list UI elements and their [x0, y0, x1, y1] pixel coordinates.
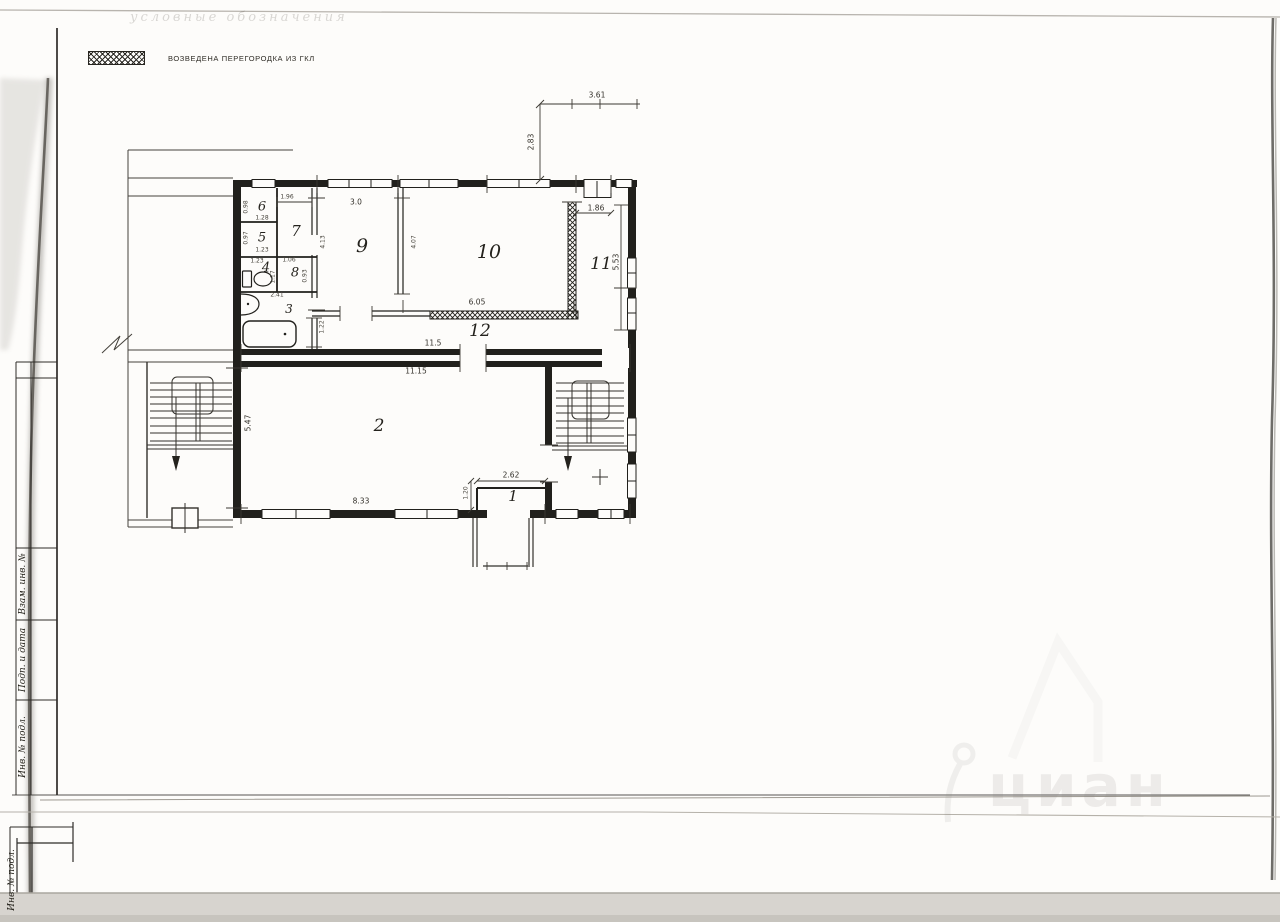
dim-2-83: 2.83 — [527, 134, 536, 151]
room-label-3: 3 — [285, 302, 293, 316]
dim-11-15: 11.15 — [405, 367, 426, 376]
toilet-tank-icon — [243, 271, 252, 287]
dim-5-47: 5.47 — [244, 415, 253, 432]
room-label-5: 5 — [258, 231, 266, 246]
titleblock-inv-podl-label: Инв. № подл. — [18, 716, 28, 778]
bathtub-icon — [243, 321, 296, 347]
dim-4-07: 4.07 — [411, 235, 418, 248]
gkl-partition-hatched — [430, 202, 578, 319]
room-label-7: 7 — [291, 222, 301, 240]
dim-room4-w: 1.23 — [250, 258, 263, 265]
cian-watermark-text: циан — [988, 752, 1171, 820]
entrance-porch — [473, 518, 533, 567]
room-label-1: 1 — [508, 487, 518, 505]
legend-section-title: условные обозначения — [130, 10, 348, 25]
stairs-right — [552, 381, 628, 485]
cian-logo-icon — [938, 742, 984, 832]
room-label-8: 8 — [291, 266, 299, 281]
dim-room5-w: 1.23 — [255, 247, 268, 254]
room-label-6: 6 — [258, 200, 266, 215]
dim-room8-w: 1.06 — [282, 257, 295, 264]
scan-bottom-band — [0, 893, 1280, 922]
room-label-10: 10 — [477, 241, 501, 263]
dim-room6-h: 0.98 — [243, 200, 250, 213]
legend-hatch-swatch — [88, 51, 145, 65]
dim-11-5: 11.5 — [425, 339, 442, 348]
dim-room6-w: 1.28 — [255, 215, 268, 222]
scanned-floor-plan-sheet: условные обозначения ВОЗВЕДЕНА ПЕРЕГОРОД… — [0, 0, 1280, 922]
dim-room8-h: 0.93 — [302, 269, 309, 282]
dim-1-22: 1.22 — [319, 320, 326, 333]
dim-room4-h: 1.17 — [270, 270, 277, 283]
dim-8-33: 8.33 — [353, 497, 370, 506]
titleblock-vzam-inv-label: Взам. инв. № — [18, 553, 28, 614]
legend-hatch-label: ВОЗВЕДЕНА ПЕРЕГОРОДКА ИЗ ГКЛ — [168, 54, 315, 63]
room-label-2: 2 — [374, 416, 385, 436]
dim-2-62: 2.62 — [503, 471, 520, 480]
room-label-12: 12 — [469, 321, 491, 341]
dim-4-13: 4.13 — [320, 235, 327, 248]
dim-room3-w: 2.41 — [270, 292, 283, 299]
room-label-9: 9 — [356, 235, 368, 257]
dim-6-05: 6.05 — [469, 298, 486, 307]
dim-1-20: 1.20 — [463, 486, 470, 499]
dim-3-0: 3.0 — [350, 198, 362, 207]
room-label-11: 11 — [590, 254, 612, 274]
dim-3-61: 3.61 — [589, 91, 606, 100]
watermark-house-ghost — [1012, 642, 1098, 762]
sink-icon — [241, 294, 259, 315]
dim-room5-h: 0.97 — [243, 231, 250, 244]
titleblock-inv-podl-label-sheet2: Инв. № подл. — [7, 849, 17, 911]
dim-1-96: 1.96 — [280, 194, 293, 201]
dimension-lines — [226, 99, 640, 570]
dim-5-53: 5.53 — [612, 254, 621, 271]
dim-1-86: 1.86 — [588, 204, 605, 213]
titleblock-podp-data-label: Подп. и дата — [18, 628, 28, 692]
stairs-left — [147, 362, 233, 533]
